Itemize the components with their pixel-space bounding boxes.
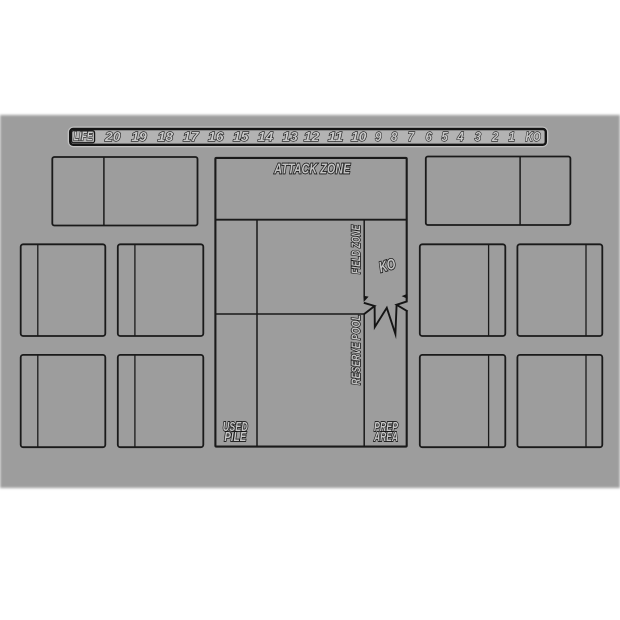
svg-text:PILE: PILE (224, 430, 247, 444)
svg-text:FIELD ZONE: FIELD ZONE (351, 225, 363, 274)
svg-text:AREA: AREA (373, 430, 398, 444)
svg-text:4: 4 (456, 129, 464, 144)
svg-text:13: 13 (282, 129, 298, 144)
svg-text:8: 8 (391, 129, 398, 144)
svg-text:ATTACK ZONE: ATTACK ZONE (274, 162, 352, 178)
svg-text:15: 15 (233, 129, 249, 144)
svg-text:6: 6 (426, 129, 433, 144)
svg-text:3: 3 (475, 129, 482, 144)
svg-text:20: 20 (104, 129, 121, 144)
svg-text:KO: KO (525, 129, 541, 144)
svg-text:5: 5 (441, 129, 448, 144)
svg-text:LIFE: LIFE (74, 129, 93, 144)
svg-text:17: 17 (183, 129, 199, 144)
svg-text:12: 12 (304, 129, 320, 144)
svg-text:7: 7 (408, 129, 415, 144)
svg-text:16: 16 (208, 129, 224, 144)
svg-text:9: 9 (375, 129, 382, 144)
svg-text:11: 11 (328, 129, 344, 144)
svg-text:1: 1 (509, 129, 516, 144)
svg-text:2: 2 (491, 129, 499, 144)
svg-text:RESERVE POOL: RESERVE POOL (351, 315, 363, 385)
svg-text:18: 18 (158, 129, 174, 144)
svg-text:19: 19 (131, 129, 147, 144)
svg-text:10: 10 (351, 129, 367, 144)
svg-text:14: 14 (258, 129, 274, 144)
